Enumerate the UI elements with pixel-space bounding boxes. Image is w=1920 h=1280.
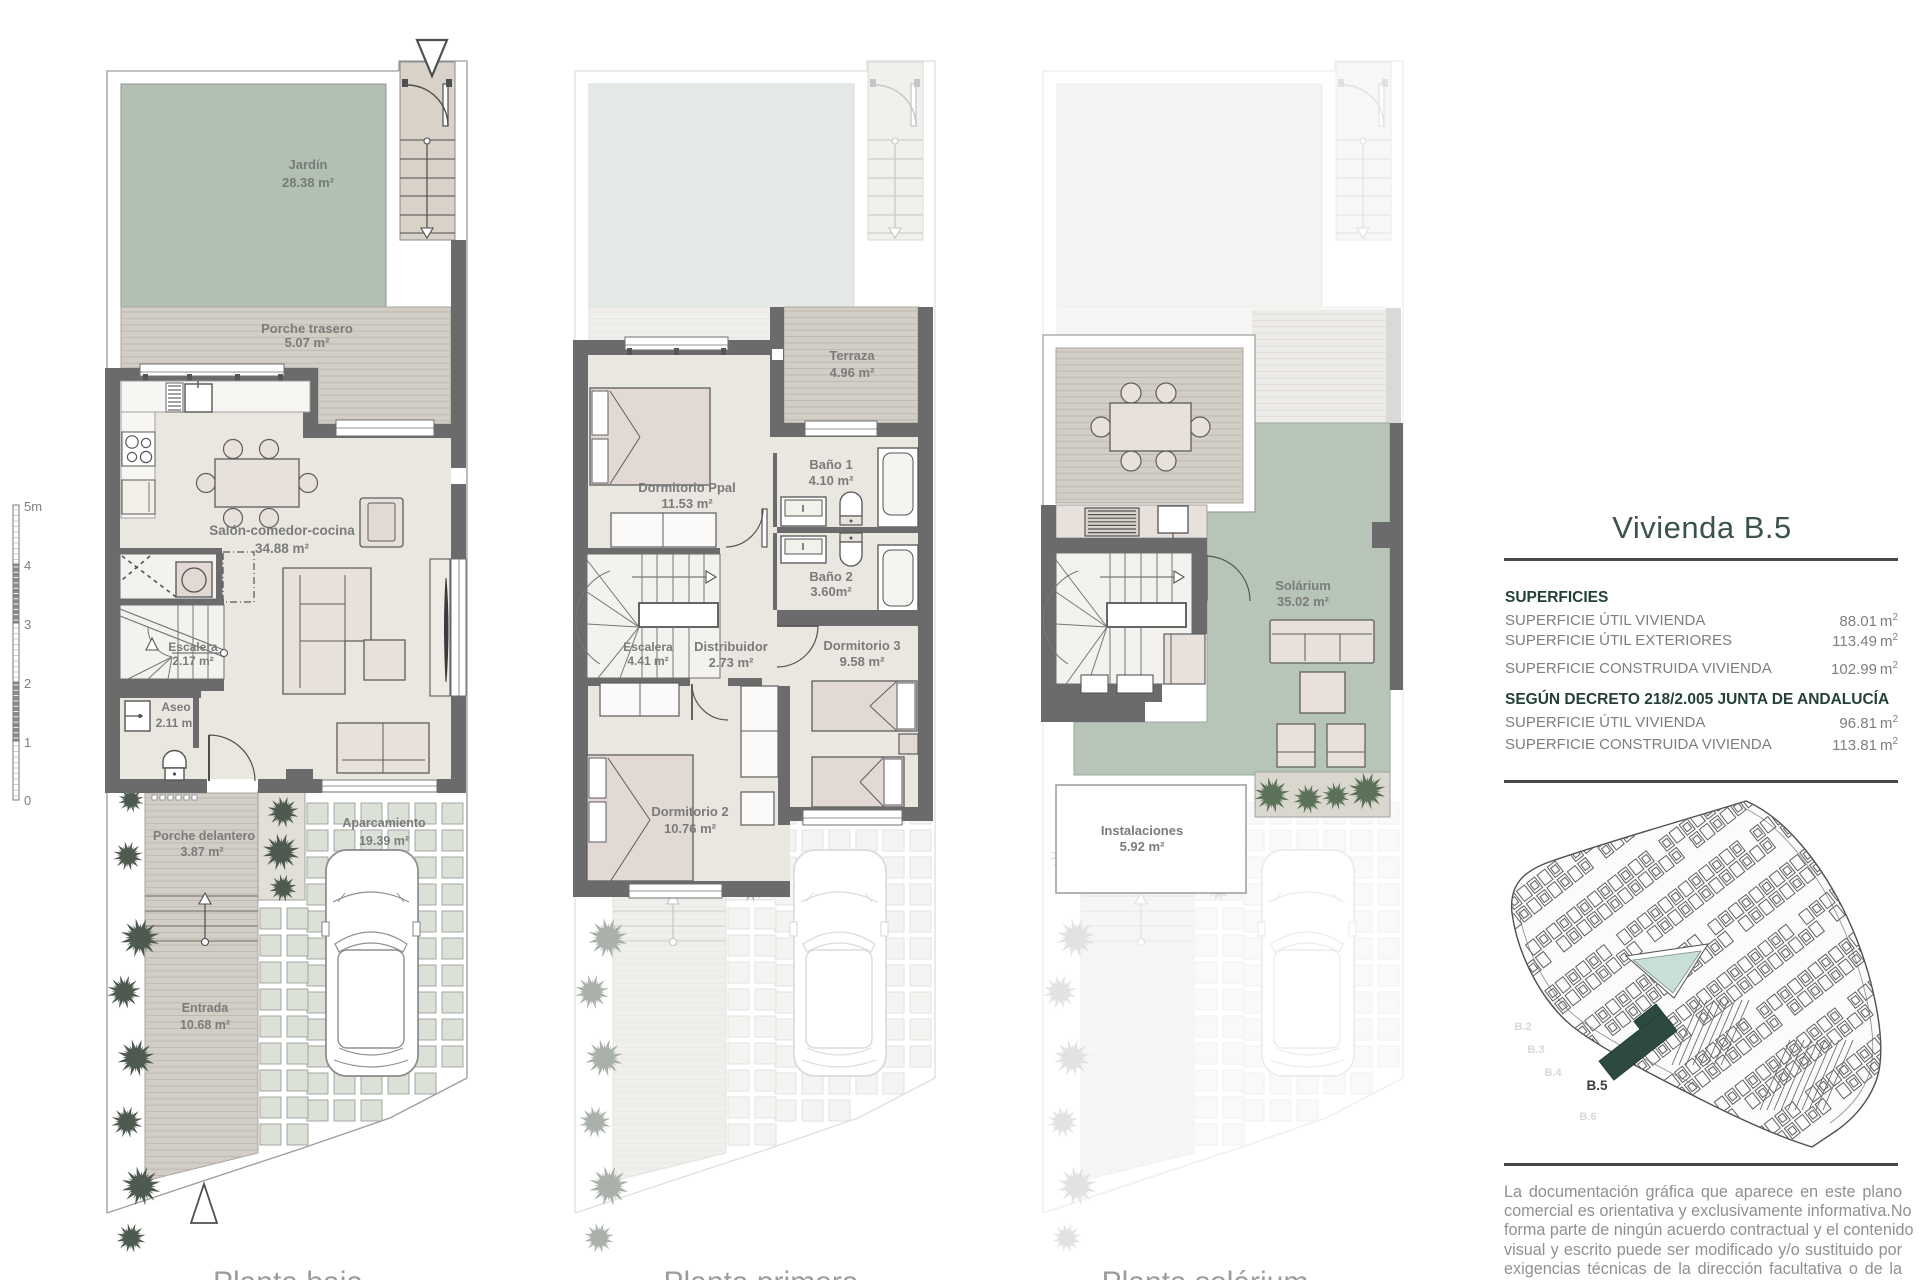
svg-text:Salón-comedor-cocina: Salón-comedor-cocina bbox=[209, 523, 355, 538]
svg-text:Planta primera: Planta primera bbox=[663, 1266, 858, 1280]
svg-text:4: 4 bbox=[24, 558, 31, 573]
svg-text:Porche delantero: Porche delantero bbox=[153, 829, 255, 843]
svg-text:B.6: B.6 bbox=[1579, 1111, 1596, 1123]
svg-text:Solárium: Solárium bbox=[1275, 578, 1331, 593]
svg-text:B.3: B.3 bbox=[1527, 1044, 1544, 1056]
svg-text:Escalera: Escalera bbox=[623, 640, 673, 654]
svg-text:Baño 2: Baño 2 bbox=[809, 569, 852, 584]
svg-text:2: 2 bbox=[24, 676, 31, 691]
svg-text:35.02 m²: 35.02 m² bbox=[1277, 594, 1330, 609]
svg-text:Dormitorio 2: Dormitorio 2 bbox=[651, 804, 728, 819]
svg-text:10.68 m²: 10.68 m² bbox=[180, 1018, 230, 1032]
svg-text:1: 1 bbox=[24, 735, 31, 750]
svg-text:3.87 m²: 3.87 m² bbox=[180, 845, 223, 859]
svg-text:28.38 m²: 28.38 m² bbox=[282, 175, 335, 190]
svg-text:Dormitorio 3: Dormitorio 3 bbox=[823, 638, 900, 653]
svg-text:Aparcamiento: Aparcamiento bbox=[342, 816, 426, 830]
svg-text:4.10 m²: 4.10 m² bbox=[809, 473, 854, 488]
svg-text:5.92 m²: 5.92 m² bbox=[1120, 839, 1165, 854]
svg-text:5.07 m²: 5.07 m² bbox=[285, 335, 330, 350]
svg-text:Instalaciones: Instalaciones bbox=[1101, 823, 1183, 838]
svg-text:Porche trasero: Porche trasero bbox=[261, 321, 353, 336]
svg-text:2.73 m²: 2.73 m² bbox=[709, 655, 754, 670]
svg-text:9.58 m²: 9.58 m² bbox=[840, 654, 885, 669]
svg-text:11.53 m²: 11.53 m² bbox=[661, 496, 713, 511]
svg-text:Distribuidor: Distribuidor bbox=[694, 639, 768, 654]
svg-text:3: 3 bbox=[24, 617, 31, 632]
svg-text:10.76 m²: 10.76 m² bbox=[664, 821, 717, 836]
svg-text:4.41 m²: 4.41 m² bbox=[627, 654, 668, 668]
svg-text:34.88 m²: 34.88 m² bbox=[255, 541, 310, 556]
svg-text:Terraza: Terraza bbox=[829, 348, 875, 363]
svg-text:0: 0 bbox=[24, 793, 31, 808]
svg-text:Planta baja: Planta baja bbox=[213, 1266, 363, 1280]
svg-text:2.17 m²: 2.17 m² bbox=[172, 654, 213, 668]
svg-text:Planta solárium: Planta solárium bbox=[1102, 1266, 1309, 1280]
svg-text:5m: 5m bbox=[24, 499, 42, 514]
svg-text:Baño 1: Baño 1 bbox=[809, 457, 852, 472]
svg-text:B.2: B.2 bbox=[1514, 1021, 1531, 1033]
svg-text:B.5: B.5 bbox=[1586, 1078, 1608, 1093]
svg-text:Dormitorio Ppal: Dormitorio Ppal bbox=[638, 480, 736, 495]
svg-text:4.96 m²: 4.96 m² bbox=[830, 365, 875, 380]
svg-text:B.4: B.4 bbox=[1544, 1067, 1562, 1079]
svg-text:Aseo: Aseo bbox=[161, 700, 190, 714]
svg-text:2.11 m: 2.11 m bbox=[156, 716, 193, 730]
svg-text:19.39 m²: 19.39 m² bbox=[359, 834, 409, 848]
svg-text:Jardín: Jardín bbox=[288, 157, 327, 172]
svg-text:Entrada: Entrada bbox=[182, 1001, 230, 1015]
svg-text:Escalera: Escalera bbox=[168, 640, 218, 654]
svg-text:3.60m²: 3.60m² bbox=[810, 584, 852, 599]
